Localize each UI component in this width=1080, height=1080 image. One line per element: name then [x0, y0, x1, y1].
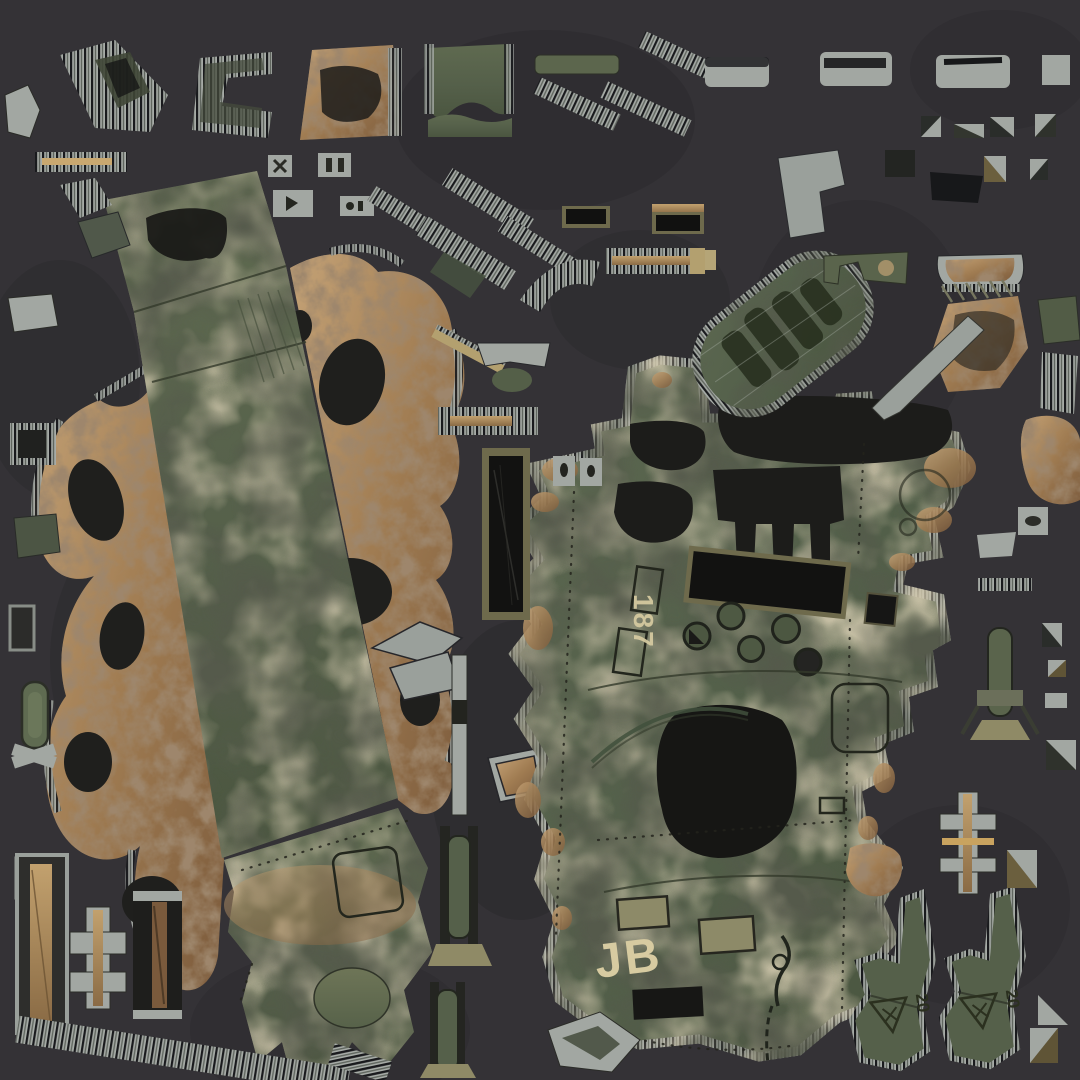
hull-dome-bump: [314, 968, 390, 1028]
uv-fragment: [930, 172, 983, 203]
uv-fragment: [978, 578, 1032, 591]
uv-fragment: [936, 55, 1010, 88]
center-hatch-void: [657, 705, 797, 858]
track-panel-island: [482, 448, 530, 620]
uv-fragment: [535, 55, 619, 74]
ladder-strip-2: [438, 407, 538, 435]
uv-fragment: [885, 150, 915, 177]
frame-rail-piece: [17, 855, 67, 1033]
tool-slot-piece: [133, 891, 182, 1019]
front-plate-mud-band: [224, 865, 416, 945]
uv-fragment: [1042, 55, 1070, 85]
uv-fragment: [10, 606, 34, 650]
uv-fragment: [14, 514, 60, 558]
uv-texture-atlas: 187 JB: [0, 0, 1080, 1080]
uv-fragment: [977, 532, 1016, 558]
crew-initials-marking: JB: [592, 928, 665, 989]
hull-number-marking: 187: [628, 594, 659, 650]
ladder-strip-3: [35, 152, 127, 172]
uv-fragment: [424, 44, 514, 137]
uv-fragment: [452, 655, 467, 815]
uv-fragment: [705, 57, 769, 87]
load-class-text: 20: [912, 992, 933, 1013]
uv-fragment: [300, 45, 402, 140]
uv-fragment: [824, 252, 908, 284]
uv-fragment: [8, 294, 58, 332]
uv-fragment: [492, 368, 532, 392]
load-class-text: 20: [1002, 988, 1023, 1009]
uv-fragment: [820, 52, 892, 86]
uv-fragment: [690, 248, 705, 274]
